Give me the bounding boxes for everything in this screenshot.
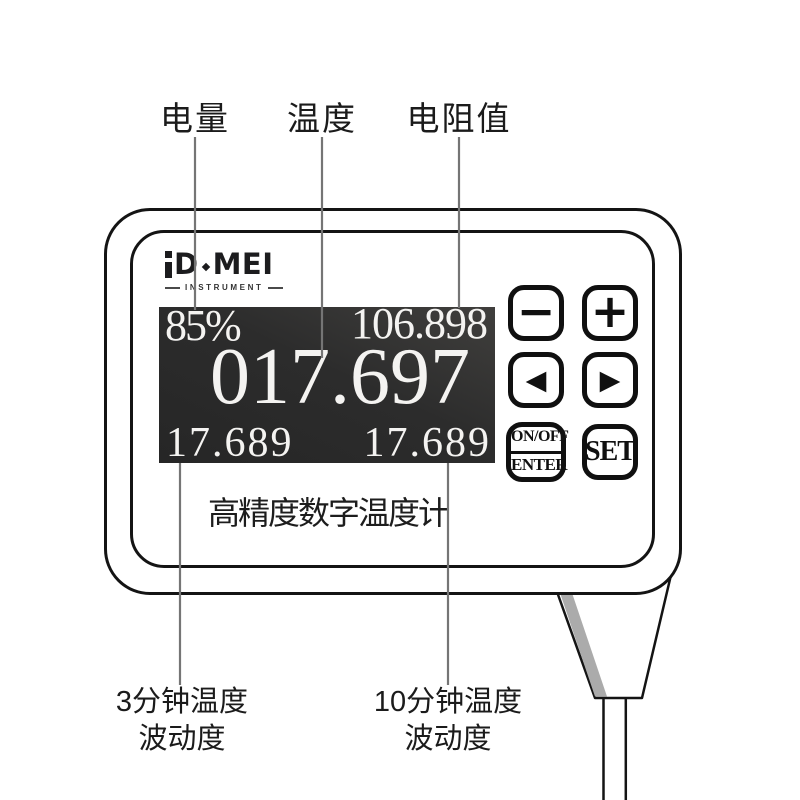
brand-subtitle: INSTRUMENT — [165, 283, 283, 292]
fluct-3min-label-line2: 波动度 — [116, 721, 248, 758]
left-arrow-icon: ◀ — [526, 367, 547, 394]
right-arrow-button[interactable]: ▶ — [582, 352, 638, 408]
fluct-10min-label-line1: 10分钟温度 — [374, 684, 522, 721]
subtitle-left-dash — [165, 287, 180, 289]
temperature-label: 温度 — [287, 92, 357, 140]
fluct-3min-label: 3分钟温度 波动度 — [116, 684, 248, 758]
resistance-label: 电阻值 — [407, 92, 512, 140]
set-label: SET — [585, 436, 635, 468]
logo-letters-mei: MEI — [213, 250, 274, 279]
lcd-screen: 85% 106.898 017.697 17.689 17.689 — [159, 307, 495, 463]
brand-wordmark: D MEI — [165, 248, 283, 280]
plus-button[interactable]: + — [582, 285, 638, 341]
fluctuation-10min-value: 17.689 — [364, 421, 492, 465]
fluctuation-3min-value: 17.689 — [166, 421, 294, 465]
brand-logo: D MEI INSTRUMENT — [165, 248, 283, 292]
enter-label: ENTER — [511, 455, 561, 475]
onoff-divider — [511, 451, 561, 454]
device-caption: 高精度数字温度计 — [208, 488, 448, 534]
onoff-enter-button[interactable]: ON/OFF ENTER — [506, 422, 566, 482]
fluct-3min-label-line1: 3分钟温度 — [116, 684, 248, 721]
plus-icon: + — [591, 288, 630, 334]
left-arrow-button[interactable]: ◀ — [508, 352, 564, 408]
battery-label: 电量 — [160, 92, 230, 140]
product-illustration: D MEI INSTRUMENT 85% 106.898 017.697 17.… — [0, 0, 800, 800]
cable-tube — [603, 697, 627, 800]
logo-letter-d: D — [174, 250, 199, 279]
minus-button[interactable]: − — [508, 285, 564, 341]
subtitle-right-dash — [268, 287, 283, 289]
fluct-10min-label: 10分钟温度 波动度 — [374, 684, 522, 758]
right-arrow-icon: ▶ — [600, 367, 621, 394]
logo-broken-bar-icon — [165, 251, 172, 278]
main-temperature-value: 017.697 — [210, 337, 470, 417]
minus-icon: − — [517, 288, 556, 334]
logo-diamond-dot-icon — [201, 263, 209, 271]
device-body: D MEI INSTRUMENT 85% 106.898 017.697 17.… — [104, 208, 682, 595]
set-button[interactable]: SET — [582, 424, 638, 480]
onoff-label: ON/OFF — [511, 428, 561, 446]
subtitle-text: INSTRUMENT — [185, 283, 263, 292]
fluct-10min-label-line2: 波动度 — [374, 721, 522, 758]
